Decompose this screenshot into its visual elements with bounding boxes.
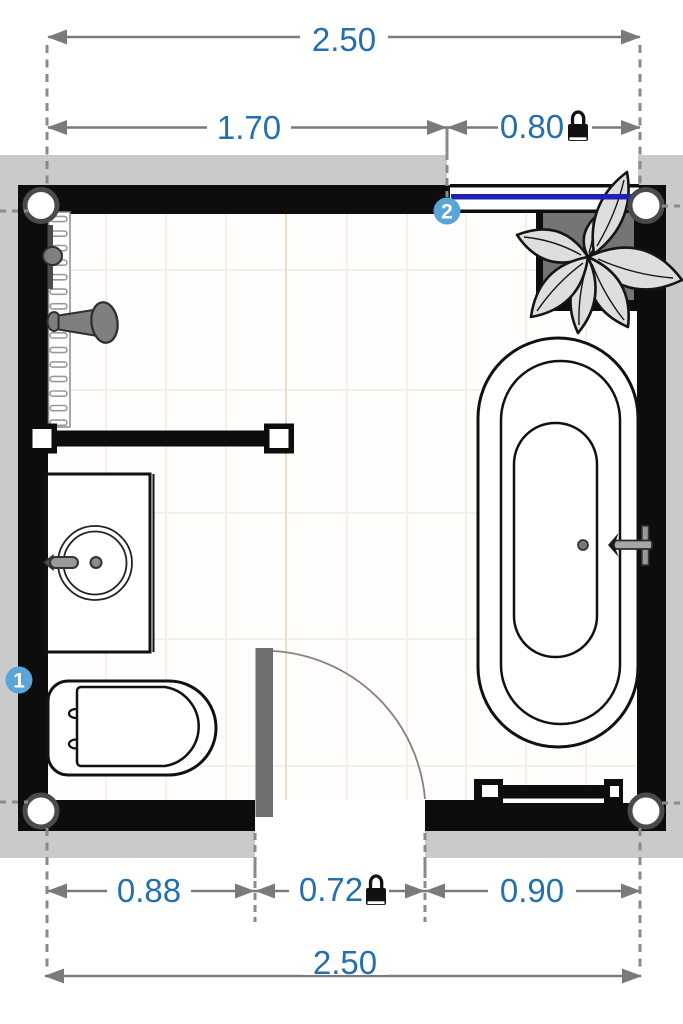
svg-text:2.50: 2.50 bbox=[313, 944, 377, 981]
svg-text:2: 2 bbox=[441, 201, 453, 224]
svg-text:0.72: 0.72 bbox=[299, 871, 363, 908]
svg-text:2.50: 2.50 bbox=[312, 21, 376, 58]
svg-text:1: 1 bbox=[13, 670, 25, 693]
svg-text:0.80: 0.80 bbox=[500, 108, 564, 145]
svg-text:0.90: 0.90 bbox=[500, 872, 564, 909]
svg-text:0.88: 0.88 bbox=[117, 872, 181, 909]
svg-text:1.70: 1.70 bbox=[217, 109, 281, 146]
